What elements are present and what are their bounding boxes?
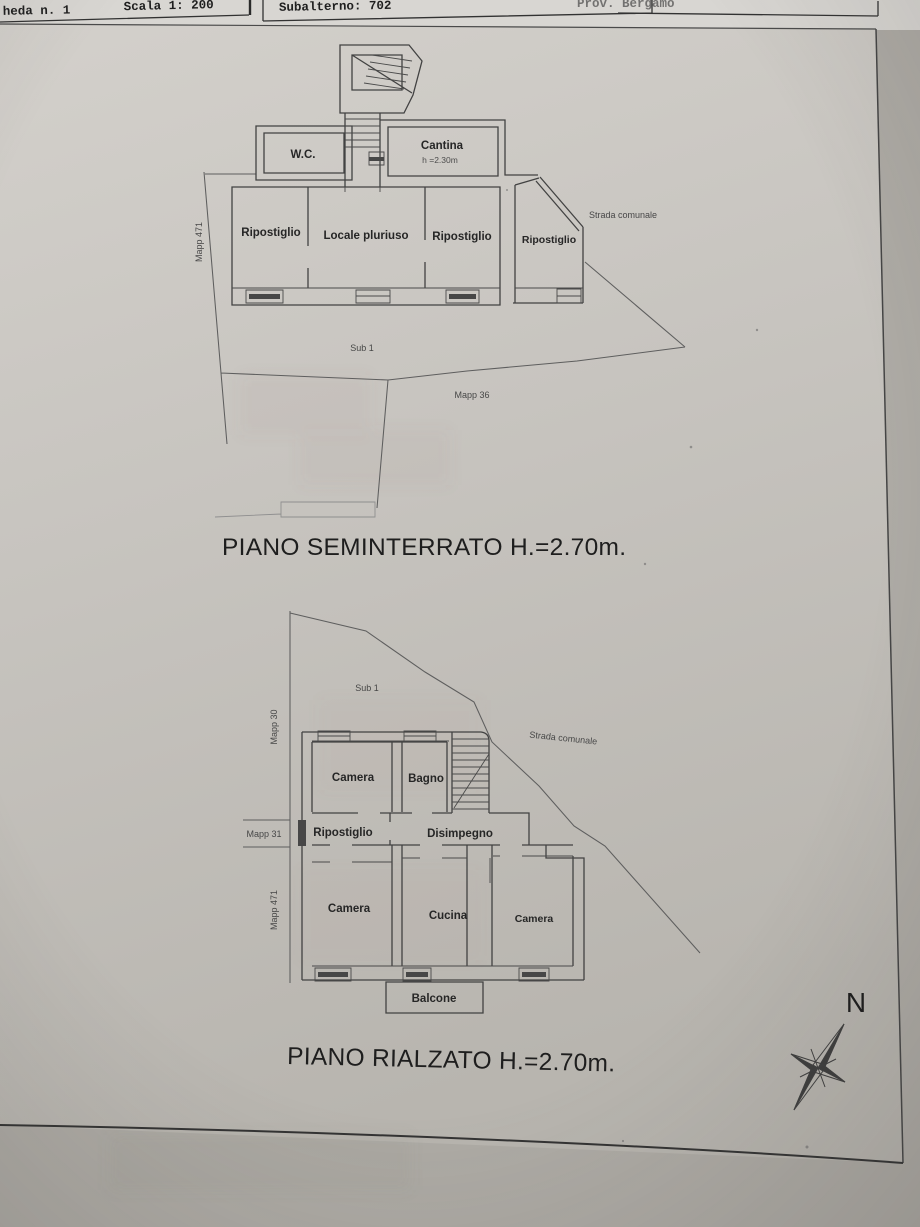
- scanned-cadastral-floorplan-page: heda n. 1 Scala 1: 200 Subalterno: 702 P…: [0, 0, 920, 1227]
- floorplan-drawing: heda n. 1 Scala 1: 200 Subalterno: 702 P…: [0, 0, 920, 1227]
- photo-vignette: [0, 0, 920, 1227]
